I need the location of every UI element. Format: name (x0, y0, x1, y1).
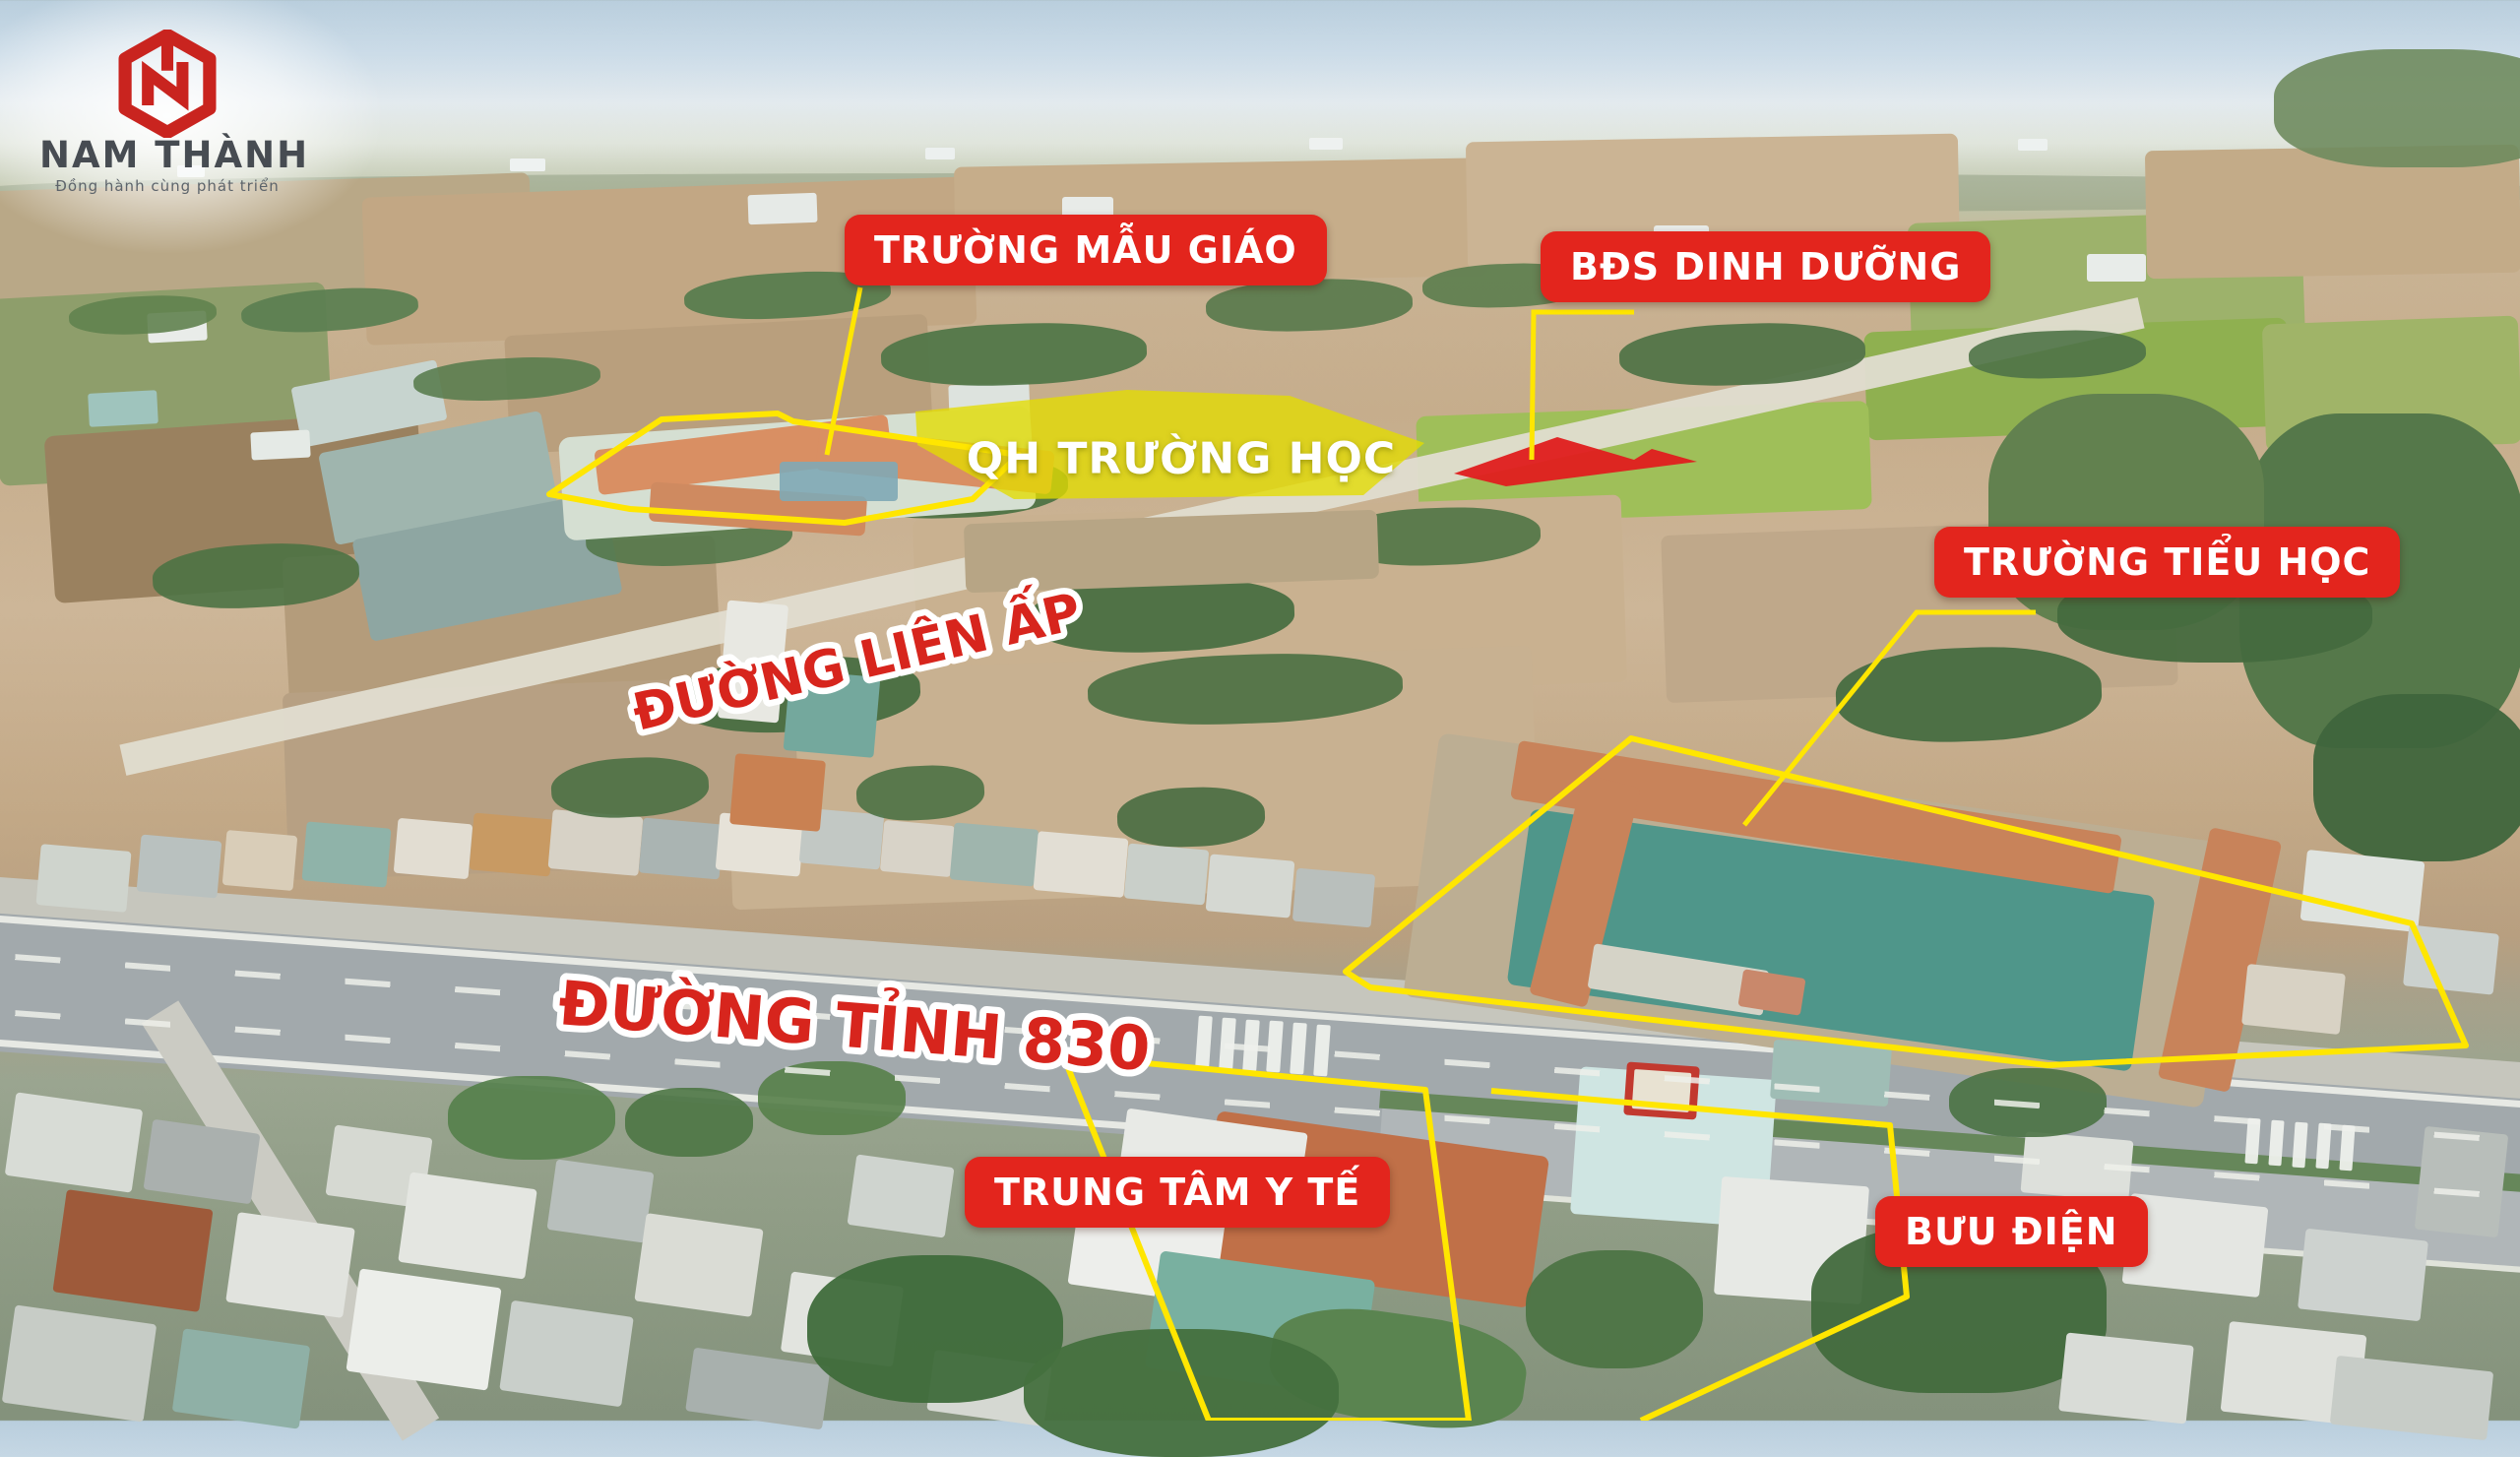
post-office-outline (1491, 1091, 1907, 1421)
nam-thanh-monogram-icon (113, 30, 221, 138)
bds-leader-line (1532, 312, 1634, 460)
brand-tagline: Đồng hành cùng phát triển (39, 177, 295, 195)
label-primary-school: TRƯỜNG TIỂU HỌC (1934, 527, 2400, 598)
label-medical-center: TRUNG TÂM Y TẾ (965, 1157, 1390, 1228)
label-school-plan-area: QH TRƯỜNG HỌC (967, 434, 1396, 484)
brand-logo: NAM THÀNH Đồng hành cùng phát triển (39, 8, 295, 215)
primary-school-leader-line (1744, 612, 2036, 825)
label-post-office: BƯU ĐIỆN (1875, 1196, 2148, 1267)
label-kindergarten: TRƯỜNG MẪU GIÁO (845, 215, 1327, 285)
label-bds-dinh-duong: BĐS DINH DƯỠNG (1541, 231, 1990, 302)
road-label-lien-ap: ĐƯỜNG LIÊN ẤP (626, 575, 1087, 743)
bds-plot-shape (1454, 437, 1697, 486)
brand-name: NAM THÀNH (39, 134, 295, 176)
medical-center-outline (1063, 1055, 1469, 1421)
primary-school-outline (1346, 738, 2466, 1065)
road-label-dt830: ĐƯỜNG TỈNH 830 (556, 960, 1154, 1085)
